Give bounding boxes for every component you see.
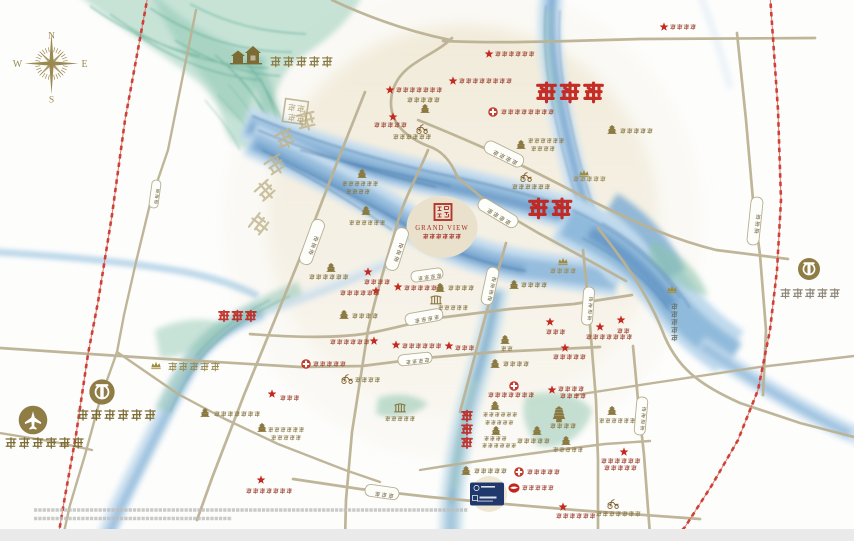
svg-text:W: W (13, 59, 23, 70)
svg-text:S: S (49, 96, 54, 106)
svg-text:GRAND VIEW: GRAND VIEW (415, 225, 468, 232)
svg-text:N: N (48, 32, 55, 42)
svg-text:E: E (81, 59, 87, 70)
